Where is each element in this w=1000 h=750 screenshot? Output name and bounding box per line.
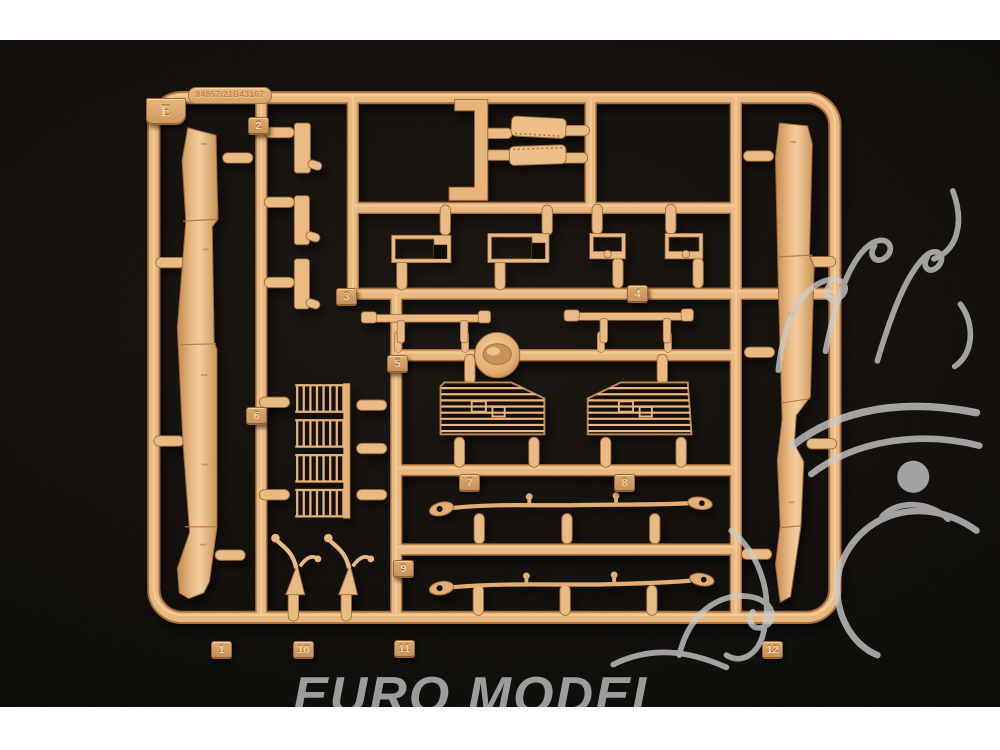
mold-code-plate: 84857/21B43107 [188, 87, 272, 104]
part-number-tag-11: 11 [394, 640, 415, 658]
part-number-tag-2: 2 [248, 117, 269, 135]
sprue-letter-tab: E [146, 98, 186, 125]
part-number-tag-5: 5 [387, 355, 408, 373]
part-number-tag-6: 6 [246, 407, 267, 425]
part-number-tag-9: 9 [393, 560, 414, 578]
part-number-tag-10: 10 [293, 641, 314, 659]
part-number-tag-1: 1 [211, 641, 232, 659]
part-number-tag-7: 7 [459, 474, 480, 492]
part-number-tag-8: 8 [614, 474, 635, 492]
hatch-disc-part [475, 332, 520, 377]
watermark-text: EURO MODEL [293, 670, 665, 707]
part-number-tag-4: 4 [627, 285, 648, 303]
top-white-strip [0, 0, 1000, 40]
product-photo-canvas: EURO MODEL E 84857/21B43107 1 2 3 4 5 6 … [0, 0, 1000, 750]
bottom-white-strip [0, 707, 1000, 750]
sprue-photo: EURO MODEL E 84857/21B43107 1 2 3 4 5 6 … [0, 40, 1000, 707]
part-number-tag-3: 3 [336, 288, 357, 306]
part-number-tag-12: 12 [762, 641, 783, 659]
sprue-frame-photo [0, 40, 1000, 707]
